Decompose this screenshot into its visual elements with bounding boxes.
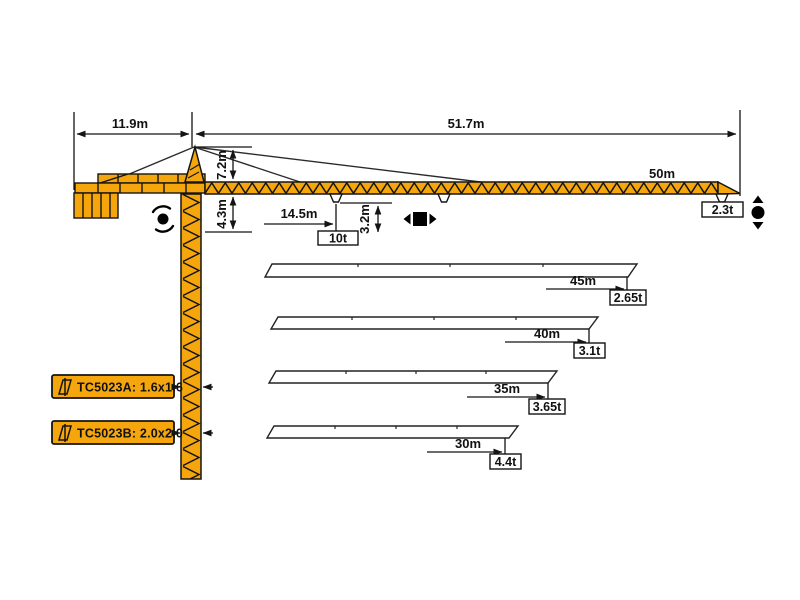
tower-crane-elevation-drawing: 11.9m 51.7m 7.2m 4.3m 14.5m 3.2m 50m 10t… — [0, 0, 800, 600]
jib-variant-40m: 40m 3.1t — [271, 317, 605, 358]
dimension-lines — [74, 110, 740, 232]
trolley-hooks — [330, 194, 728, 202]
max-load-value: 10t — [329, 232, 348, 246]
tower-head — [185, 147, 204, 182]
jib-variant-35m: 35m 3.65t — [269, 371, 565, 414]
dim-working-range-label: 51.7m — [448, 116, 485, 131]
variant-tipload-45m: 2.65t — [614, 291, 643, 305]
model-b-label: TC5023B: 2.0x2.0 — [77, 427, 183, 441]
variant-tipload-30m: 4.4t — [495, 455, 517, 469]
main-jib — [205, 182, 740, 194]
jib-length-50m-label: 50m — [649, 166, 675, 181]
jib-variant-30m: 30m 4.4t — [267, 426, 521, 469]
dim-counter-jib-label: 11.9m — [112, 116, 148, 131]
variant-length-30m: 30m — [455, 436, 481, 451]
crane-diagram-canvas: 11.9m 51.7m 7.2m 4.3m 14.5m 3.2m 50m 10t… — [0, 0, 800, 600]
variant-length-35m: 35m — [494, 381, 520, 396]
dim-hook-clearance-label: 3.2m — [357, 204, 372, 234]
max-load-box: 10t — [318, 231, 358, 246]
tower-mast — [181, 194, 201, 479]
variant-tipload-40m: 3.1t — [579, 344, 601, 358]
tip-load-box-50m: 2.3t — [702, 202, 743, 217]
model-a-label: TC5023A: 1.6x1.6 — [77, 381, 183, 395]
dim-load-radius-label: 14.5m — [281, 206, 318, 221]
jib-tip — [718, 182, 740, 194]
tip-load-value-50m: 2.3t — [712, 203, 734, 217]
hook-hoist-icon — [752, 196, 765, 230]
counter-jib — [75, 174, 205, 193]
variant-length-45m: 45m — [570, 273, 596, 288]
jib-variant-45m: 45m 2.65t — [265, 264, 646, 305]
trolley-travel-icon — [404, 212, 437, 226]
variant-tipload-35m: 3.65t — [533, 400, 562, 414]
dim-jib-offset-label: 4.3m — [214, 199, 229, 229]
dim-tower-head-label: 7.2m — [214, 150, 229, 180]
counterweight-blocks — [74, 193, 118, 218]
variant-length-40m: 40m — [534, 326, 560, 341]
slewing-rotation-icon — [153, 206, 173, 231]
